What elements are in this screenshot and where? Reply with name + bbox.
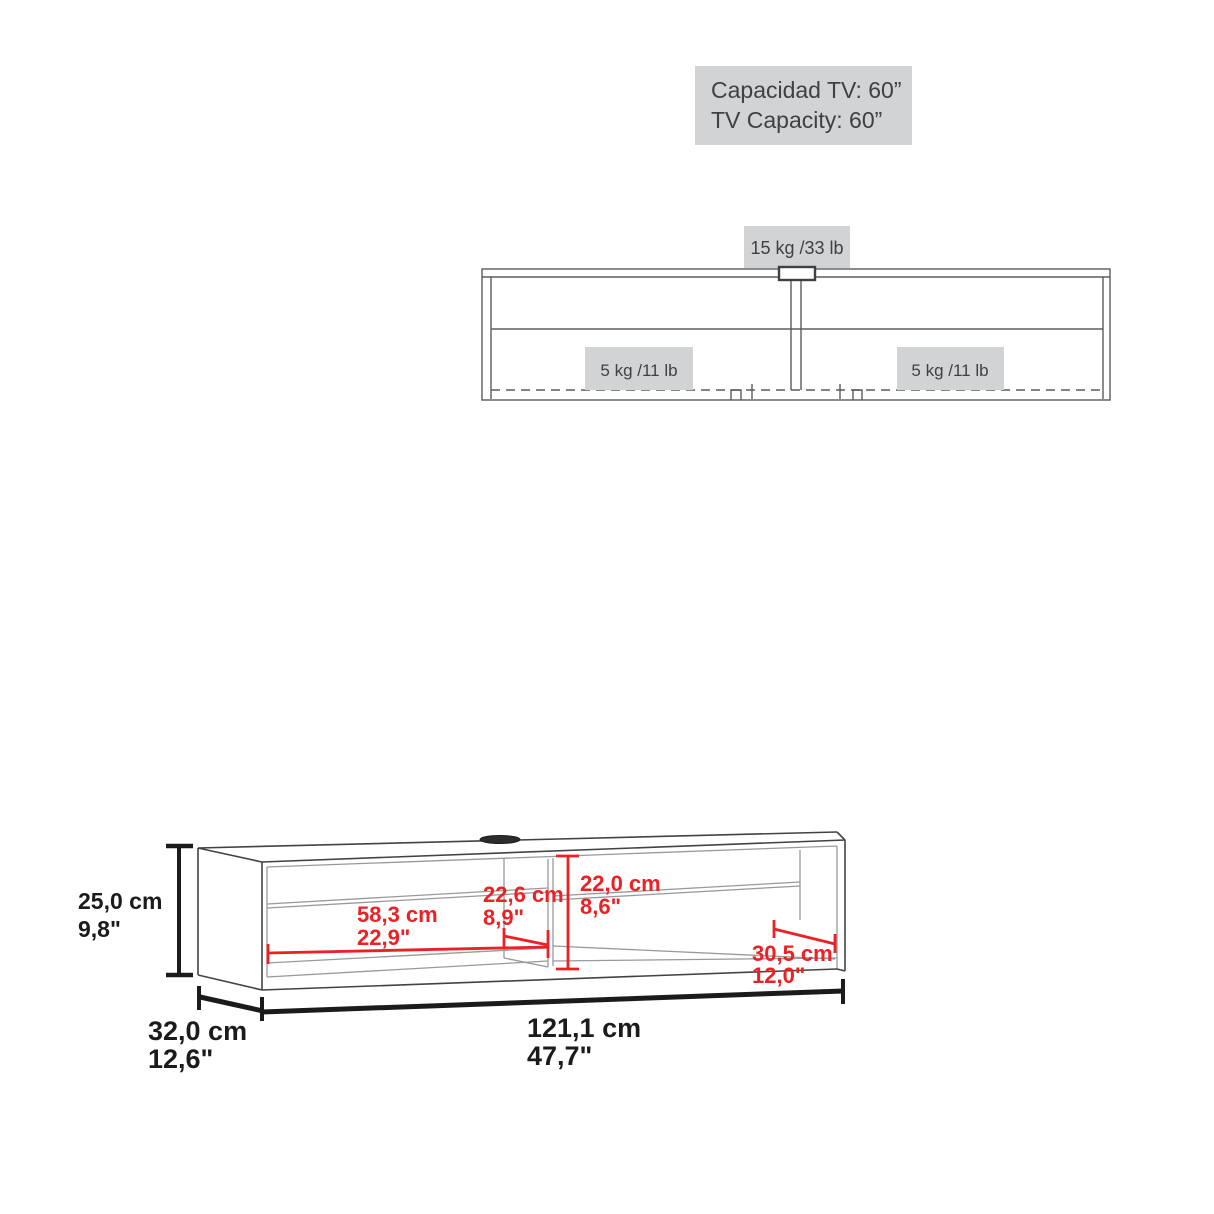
left-clip-notch bbox=[731, 390, 741, 400]
tv-capacity-label: Capacidad TV: 60” TV Capacity: 60” bbox=[695, 66, 912, 145]
top-left-cap bbox=[198, 848, 262, 862]
height-in-label: 9,8" bbox=[78, 916, 121, 942]
mount-bracket bbox=[779, 267, 815, 280]
front-view-outline bbox=[482, 269, 1110, 400]
width-cm-label: 121,1 cm bbox=[527, 1013, 641, 1043]
red-dimension-lines bbox=[268, 856, 835, 969]
tv-capacity-line-es: Capacidad TV: 60” bbox=[711, 77, 902, 103]
bottom-right-cap bbox=[837, 969, 845, 971]
top-right-cap bbox=[837, 832, 845, 840]
product-dimension-sheet: Capacidad TV: 60” TV Capacity: 60” 15 kg… bbox=[0, 0, 1214, 1214]
cable-grommet bbox=[480, 836, 520, 844]
right-depth-in-label: 12,0" bbox=[752, 963, 805, 988]
left-depth-cm-label: 22,6 cm bbox=[483, 882, 564, 907]
tv-capacity-line-en: TV Capacity: 60” bbox=[711, 107, 882, 133]
inner-height-in-label: 8,6" bbox=[580, 894, 621, 919]
width-in-label: 47,7" bbox=[527, 1041, 592, 1071]
front-view-drawing: 15 kg /33 lb 5 kg /11 lb 5 kg /11 lb bbox=[482, 226, 1110, 400]
left-width-in-label: 22,9" bbox=[357, 925, 410, 950]
width-dim-line bbox=[262, 991, 843, 1012]
left-weight-label: 5 kg /11 lb bbox=[600, 361, 677, 380]
bottom-left-cap bbox=[198, 975, 262, 990]
inner-height-cm-label: 22,0 cm bbox=[580, 871, 661, 896]
left-depth-in-label: 8,9" bbox=[483, 905, 524, 930]
right-clip-notch bbox=[853, 390, 862, 400]
left-depth-dim-line bbox=[504, 936, 548, 945]
depth-dim-line bbox=[200, 997, 263, 1011]
height-cm-label: 25,0 cm bbox=[78, 888, 162, 914]
top-weight-label: 15 kg /33 lb bbox=[750, 238, 843, 258]
right-weight-label: 5 kg /11 lb bbox=[911, 361, 988, 380]
left-width-cm-label: 58,3 cm bbox=[357, 902, 438, 927]
diagram-canvas: Capacidad TV: 60” TV Capacity: 60” 15 kg… bbox=[0, 0, 1214, 1214]
depth-cm-label: 32,0 cm bbox=[148, 1016, 247, 1046]
depth-in-label: 12,6" bbox=[148, 1044, 213, 1074]
left-opening-bottom-edge bbox=[267, 961, 548, 977]
opening-top-edge bbox=[267, 846, 837, 867]
